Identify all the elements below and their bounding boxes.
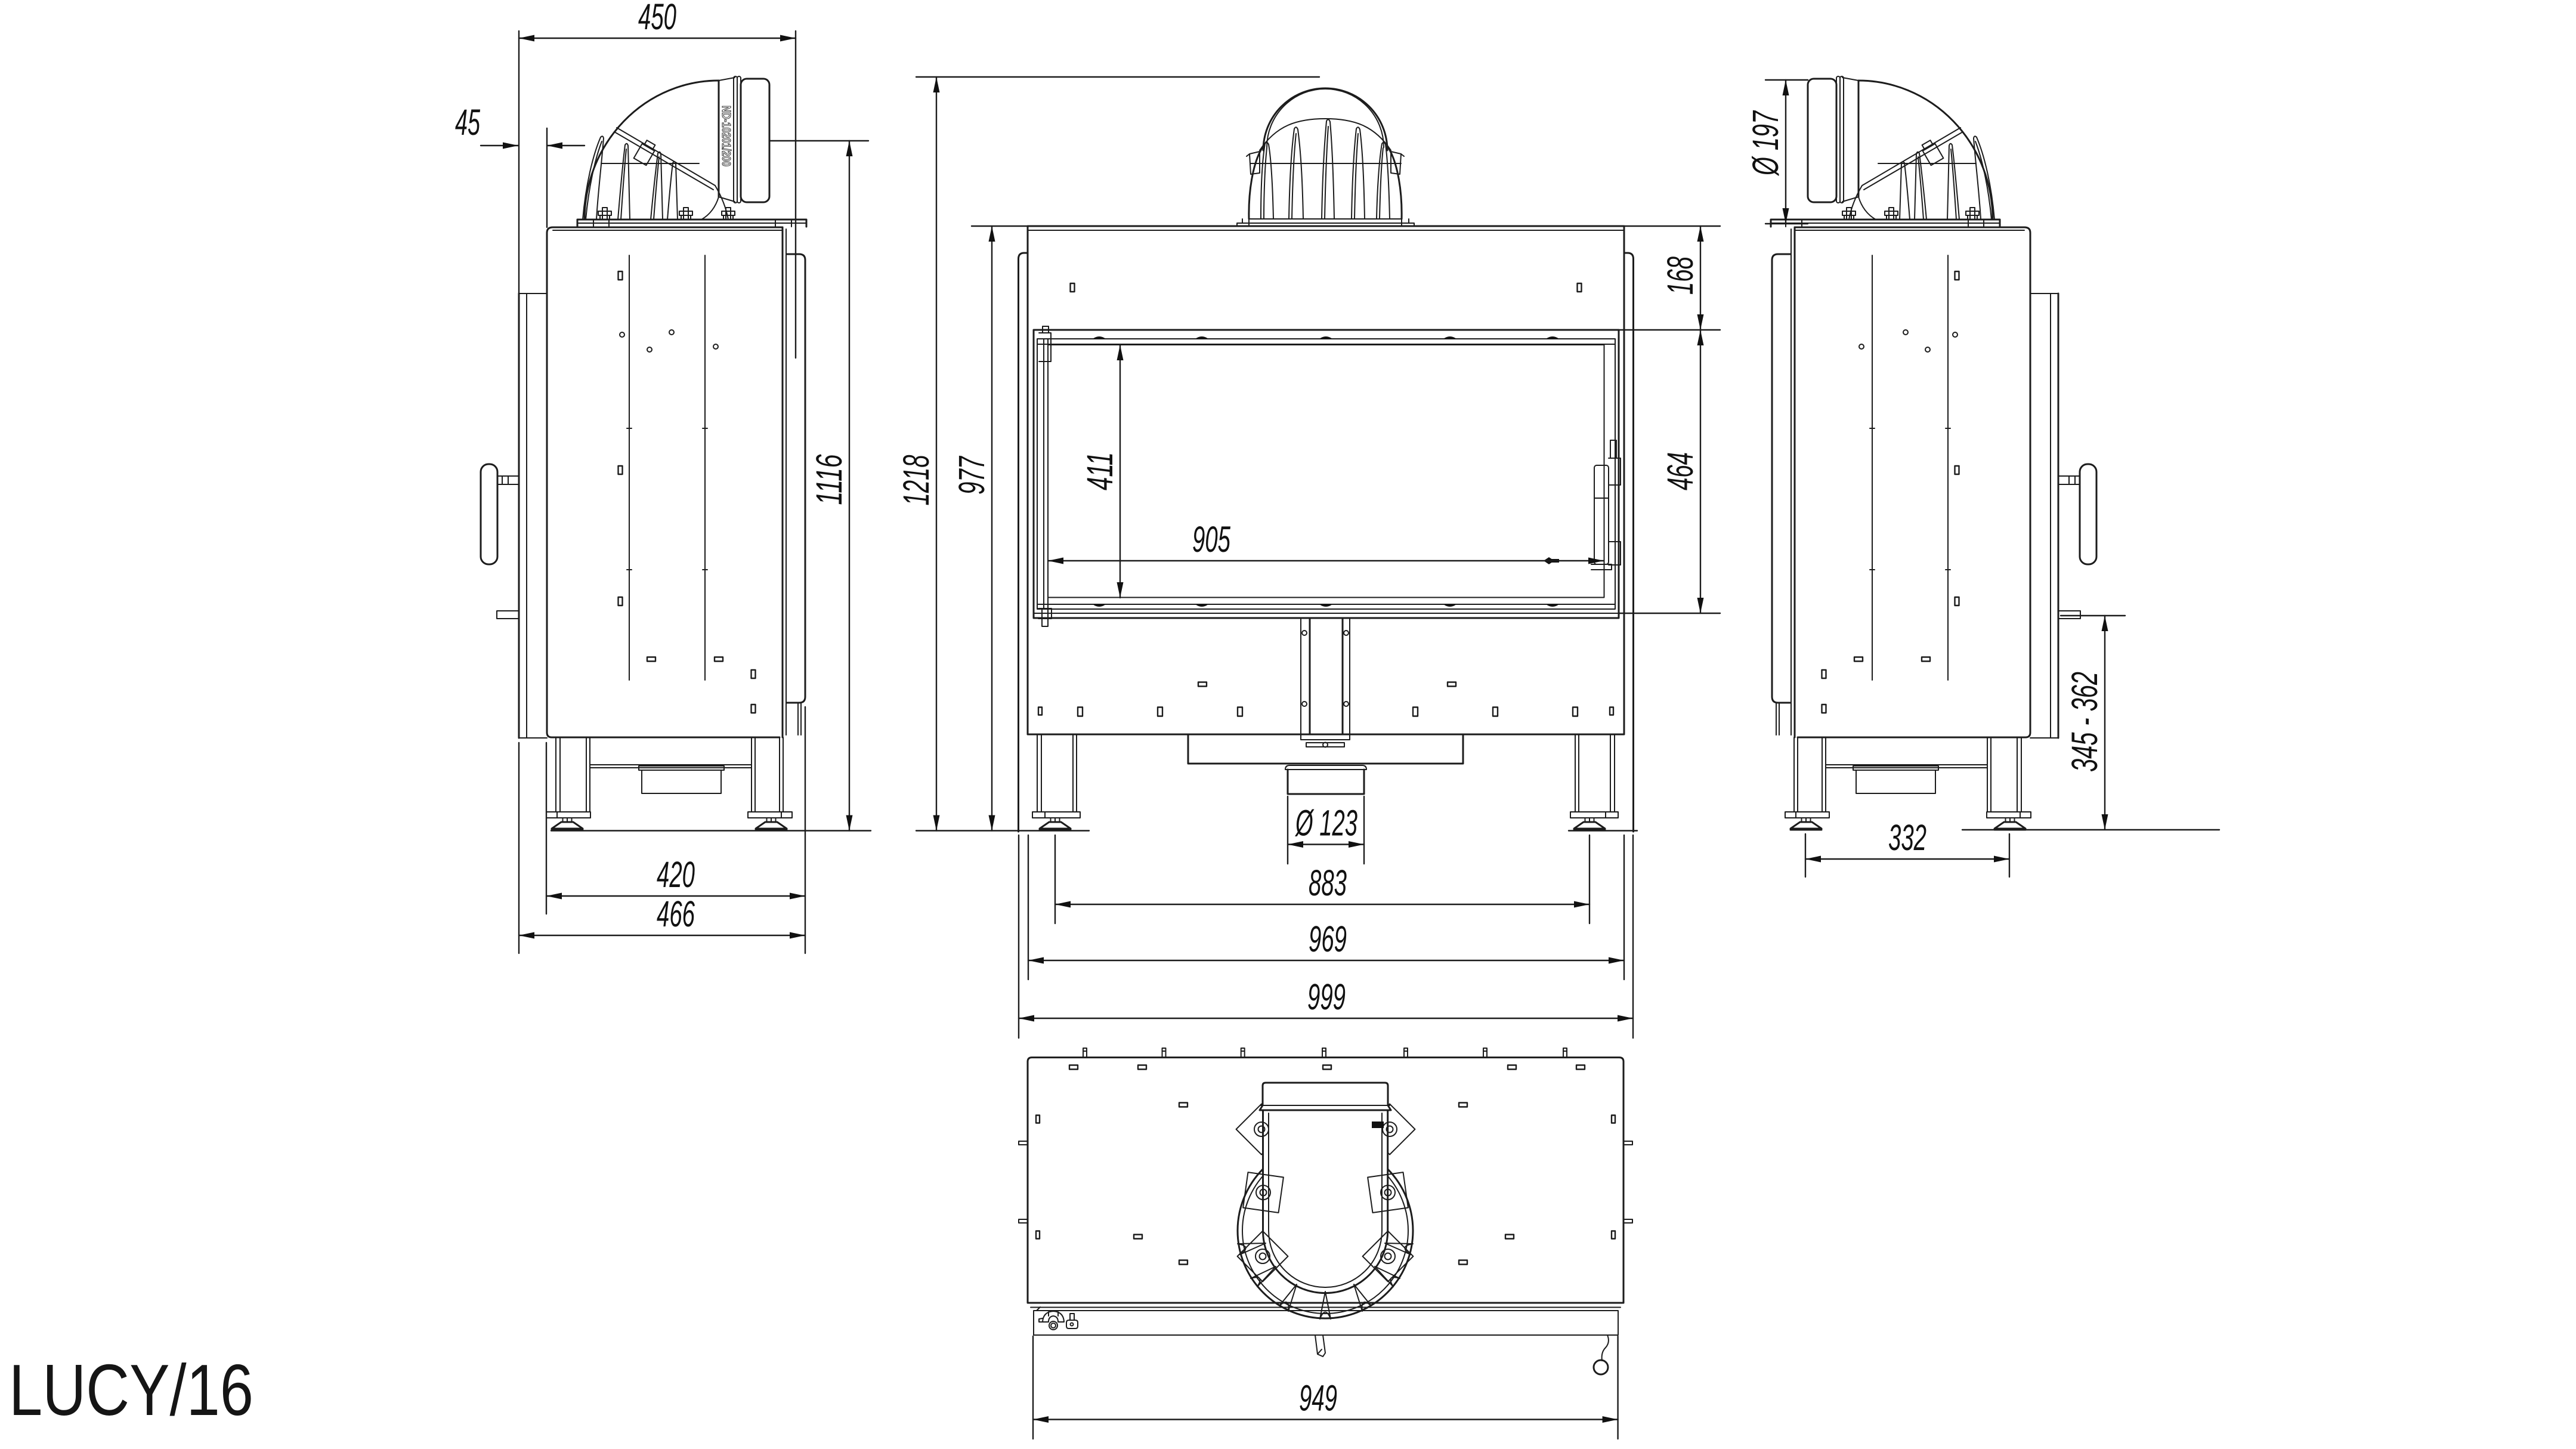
svg-text:1218: 1218 [896,455,936,505]
svg-text:LUCY/16: LUCY/16 [9,1349,253,1431]
svg-text:1116: 1116 [809,454,849,505]
svg-text:332: 332 [1888,817,1926,858]
svg-text:450: 450 [638,0,676,37]
svg-text:969: 969 [1309,919,1347,959]
svg-text:905: 905 [1192,519,1231,560]
svg-text:ND-10201/200: ND-10201/200 [719,106,732,166]
svg-text:Ø 197: Ø 197 [1745,110,1786,177]
svg-text:Ø 123: Ø 123 [1295,803,1357,844]
svg-text:464: 464 [1660,452,1700,490]
svg-text:999: 999 [1307,977,1346,1017]
svg-text:420: 420 [657,854,695,895]
svg-text:168: 168 [1660,257,1700,295]
svg-text:949: 949 [1299,1378,1337,1419]
svg-text:45: 45 [455,102,481,143]
svg-text:345 - 362: 345 - 362 [2064,672,2105,772]
svg-text:883: 883 [1309,863,1347,903]
svg-text:466: 466 [657,894,695,934]
svg-text:411: 411 [1080,452,1120,490]
svg-text:977: 977 [951,456,992,495]
